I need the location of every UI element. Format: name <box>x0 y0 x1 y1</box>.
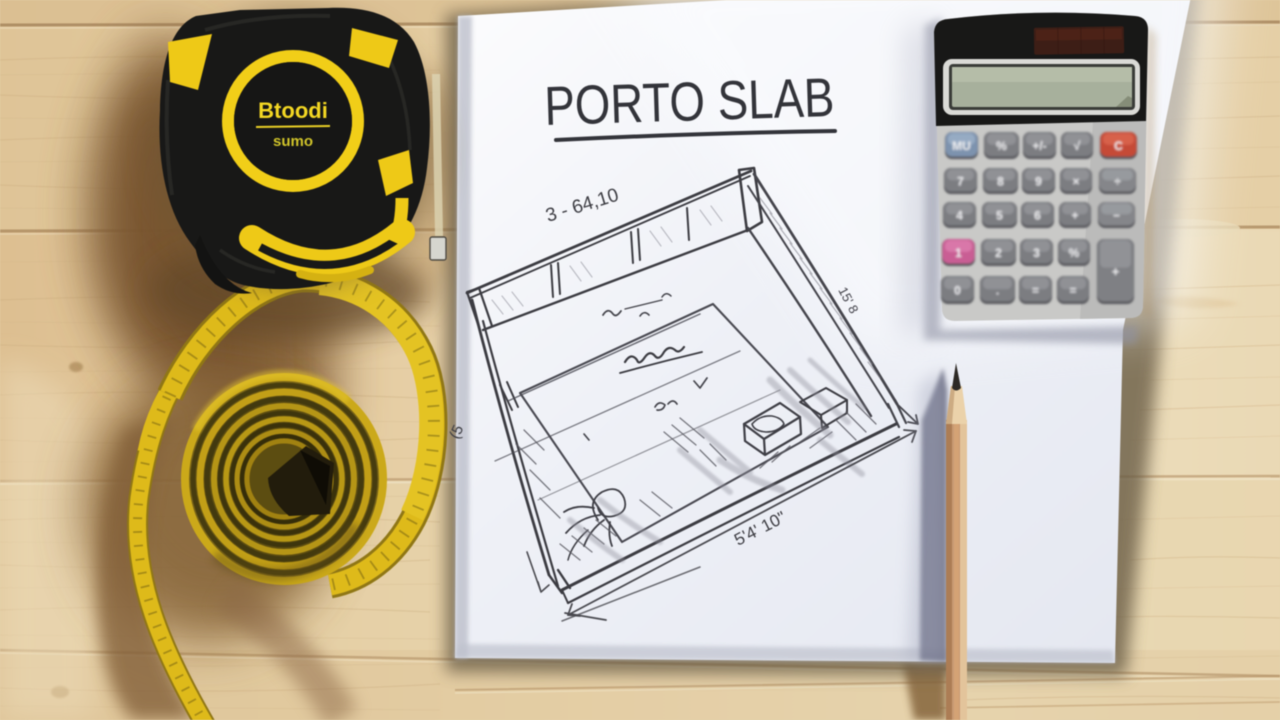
svg-text:3: 3 <box>1033 246 1040 260</box>
svg-text:+: + <box>1112 264 1120 279</box>
svg-text:1: 1 <box>955 246 962 260</box>
svg-text:9: 9 <box>1035 175 1042 189</box>
svg-text:Btoodi: Btoodi <box>258 98 328 123</box>
svg-text:−: − <box>1113 209 1120 223</box>
svg-text:+: + <box>1071 209 1078 223</box>
svg-text:+/-: +/- <box>1032 139 1046 153</box>
svg-text:sumo: sumo <box>273 133 313 150</box>
svg-text:2: 2 <box>995 246 1002 260</box>
svg-text:=: = <box>1032 284 1039 298</box>
svg-text:4: 4 <box>956 209 963 223</box>
svg-text:×: × <box>1072 175 1079 189</box>
svg-text:.: . <box>996 284 999 298</box>
svg-text:%: % <box>996 139 1007 153</box>
svg-text:7: 7 <box>957 175 964 189</box>
svg-text:C: C <box>1114 139 1123 153</box>
svg-text:√: √ <box>1074 139 1081 153</box>
svg-text:%: % <box>1069 246 1080 260</box>
svg-text:=: = <box>1069 284 1076 298</box>
svg-text:0: 0 <box>954 284 961 298</box>
svg-text:6: 6 <box>1034 209 1041 223</box>
svg-text:÷: ÷ <box>1114 175 1121 189</box>
svg-text:8: 8 <box>997 175 1004 189</box>
svg-text:MU: MU <box>952 139 971 153</box>
svg-text:PORTO SLAB: PORTO SLAB <box>543 66 835 137</box>
svg-text:5: 5 <box>996 209 1003 223</box>
